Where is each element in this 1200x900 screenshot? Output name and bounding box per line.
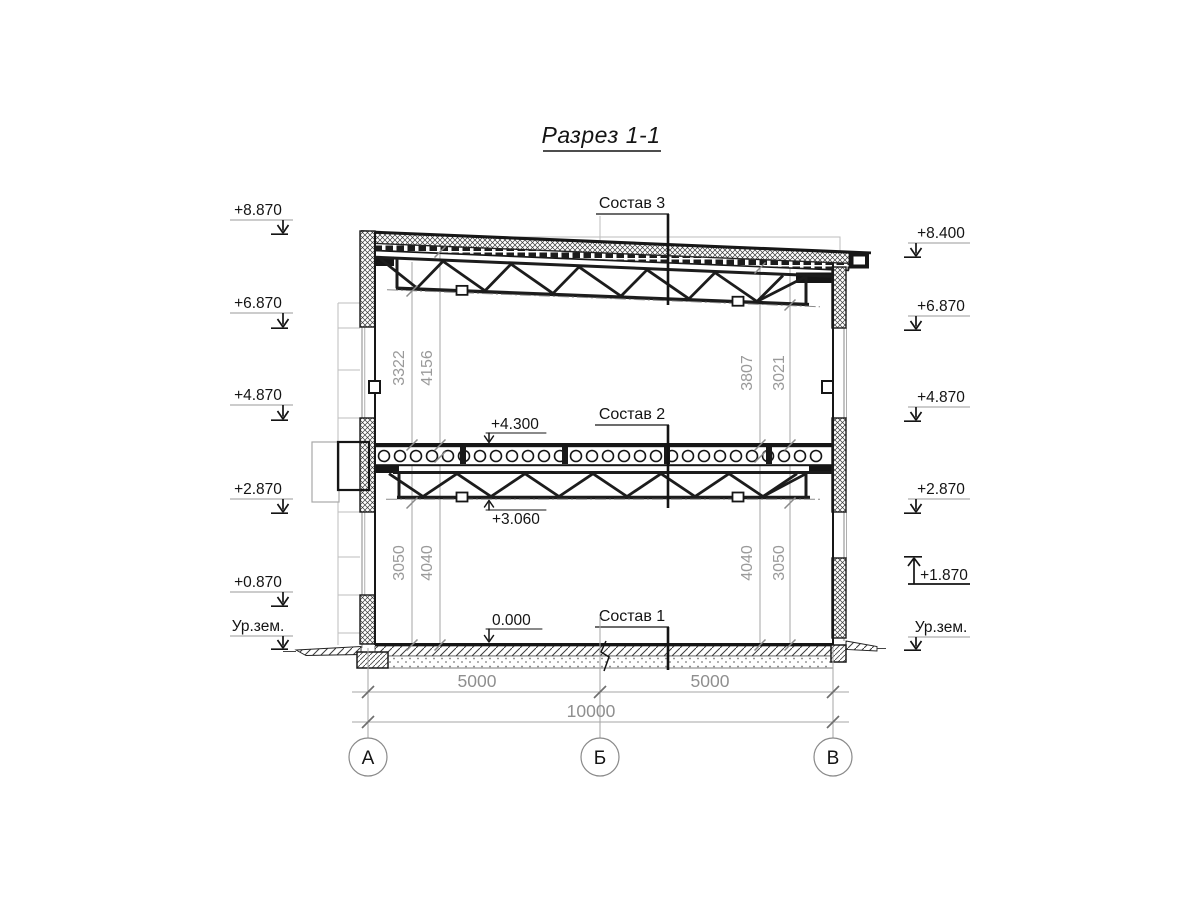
truss-member [689, 273, 715, 299]
slab-void [603, 451, 614, 462]
vertical-dim-label: 4040 [419, 545, 436, 581]
drawing-title: Разрез 1-1 [542, 122, 661, 151]
bottom-dimensions: 5000 5000 10000 А Б В [349, 616, 852, 776]
floor-top-elevation: +4.300 [491, 416, 539, 433]
truss-member [695, 474, 729, 497]
chord-centerline [387, 290, 820, 307]
page-title: Разрез 1-1 [542, 122, 661, 148]
floor-slab-bottom [375, 464, 833, 466]
slab-void [683, 451, 694, 462]
far-edge-projection-lines [338, 216, 840, 645]
left-wall-panel-bottom [360, 595, 375, 644]
roof-composition-label: Состав 3 [599, 195, 665, 212]
truss-member [763, 474, 806, 497]
level-arrow-icon [904, 243, 922, 257]
slab-joint [562, 447, 568, 464]
slab-void [699, 451, 710, 462]
vertical-dim-label: 3050 [771, 545, 788, 581]
chord-gusset [733, 493, 744, 502]
slab-void [811, 451, 822, 462]
floor-truss [375, 466, 838, 502]
dim-span-bv: 5000 [691, 671, 730, 691]
drawing-sheet: Разрез 1-1 [0, 0, 1200, 900]
vertical-dim-label: 3322 [391, 350, 408, 386]
slab-void [651, 451, 662, 462]
truss-member [389, 474, 423, 497]
slab-void [523, 451, 534, 462]
level-arrow-icon [904, 637, 922, 650]
truss-member [757, 276, 806, 301]
level-arrow-icon [904, 499, 922, 513]
up-arrow-icon [485, 501, 494, 511]
left-console-outline [312, 442, 339, 502]
truss-member [485, 264, 511, 291]
elevation-label: +1.870 [920, 567, 968, 584]
truss-member [757, 275, 783, 301]
ground-floor-elevation: 0.000 [492, 612, 531, 629]
blind-area-right [846, 641, 877, 651]
slab-joint [766, 447, 772, 464]
left-wall-panel-middle [360, 418, 375, 512]
elevation-label: +8.400 [917, 225, 965, 242]
slab-void [507, 451, 518, 462]
dim-total: 10000 [567, 701, 616, 721]
slab-void [779, 451, 790, 462]
right-embedded-plate [822, 381, 833, 393]
vertical-dim-label: 3050 [391, 545, 408, 581]
level-arrow-icon [904, 316, 922, 330]
elevation-label: Ур.зем. [915, 619, 968, 636]
left-wall [312, 231, 380, 648]
elevation-label: +6.870 [234, 295, 282, 312]
elevation-label: +2.870 [234, 481, 282, 498]
truss-member [417, 261, 443, 288]
truss-member [525, 474, 559, 497]
ground-slab [375, 641, 833, 671]
elevation-label: +6.870 [917, 298, 965, 315]
elevation-label: +2.870 [917, 481, 965, 498]
slab-void [635, 451, 646, 462]
slab-void [571, 451, 582, 462]
truss-member [579, 267, 621, 296]
slab-void [619, 451, 630, 462]
level-arrow-icon [271, 313, 289, 328]
level-arrow-icon [271, 499, 289, 513]
truss-member [511, 264, 553, 293]
side-elevation-marks: +8.870+6.870+4.870+2.870+0.870Ур.зем.+8.… [230, 202, 970, 650]
slab-void [475, 451, 486, 462]
slab-void [395, 451, 406, 462]
chord-gusset [457, 493, 468, 502]
down-arrow-icon [485, 629, 494, 642]
elevation-label: Ур.зем. [232, 618, 285, 635]
slab-void [539, 451, 550, 462]
right-wall-panel-bottom [832, 558, 846, 638]
level-arrow-icon [271, 636, 289, 649]
left-wall-panel-top [360, 231, 375, 327]
floor-composition-label: Состав 2 [599, 406, 665, 423]
axis-label-b: Б [594, 748, 606, 769]
slab-void [747, 451, 758, 462]
slab-void [715, 451, 726, 462]
level-arrow-icon [271, 405, 289, 420]
right-wall-panel-top [832, 267, 846, 328]
slab-void [427, 451, 438, 462]
slab-void [795, 451, 806, 462]
elevation-label: +4.870 [917, 389, 965, 406]
vertical-dim-label: 4040 [739, 545, 756, 581]
floor-slab-top [375, 443, 833, 447]
ground-slab-base [375, 656, 833, 668]
truss-member [627, 474, 661, 497]
elevation-label: +8.870 [234, 202, 282, 219]
level-arrow-icon [904, 407, 922, 421]
elevation-label: +0.870 [234, 574, 282, 591]
truss-member [661, 474, 695, 497]
chord-gusset [733, 297, 744, 306]
section-drawing: Разрез 1-1 [0, 0, 1200, 900]
slab-void [731, 451, 742, 462]
left-embedded-plate [369, 381, 380, 393]
level-arrow-icon [271, 220, 289, 234]
floor-slab [375, 443, 833, 466]
chord-gusset [457, 286, 468, 295]
slab-void [491, 451, 502, 462]
truss-member [621, 270, 647, 296]
slab-void [587, 451, 598, 462]
elevation-label: +4.870 [234, 387, 282, 404]
axis-label-v: В [827, 748, 840, 769]
right-wall-panel-middle [832, 418, 846, 512]
level-arrow-icon [271, 592, 289, 606]
ground-composition-label: Состав 1 [599, 608, 665, 625]
truss-member [491, 474, 525, 497]
axis-label-a: А [362, 748, 375, 769]
vertical-dim-label: 3807 [739, 355, 756, 391]
vertical-dim-label: 3021 [771, 355, 788, 391]
dim-span-ab: 5000 [458, 671, 497, 691]
blind-area-left [296, 647, 361, 656]
truss-member [553, 267, 579, 293]
down-arrow-icon [485, 433, 494, 443]
vertical-dim-label: 4156 [419, 350, 436, 386]
slab-void [411, 451, 422, 462]
foundation-left [357, 652, 388, 668]
slab-joint [460, 447, 466, 464]
floor-truss-bottom-elevation: +3.060 [492, 511, 540, 528]
slab-void [379, 451, 390, 462]
truss-member [559, 474, 593, 497]
truss-member [593, 474, 627, 497]
